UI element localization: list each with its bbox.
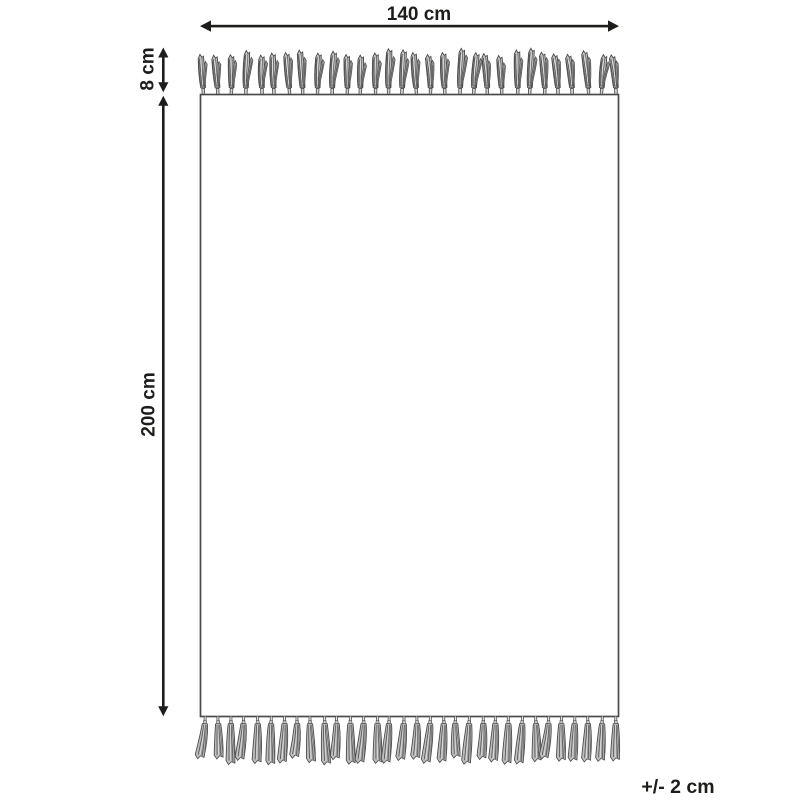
svg-text:200 cm: 200 cm	[139, 372, 160, 436]
svg-text:8 cm: 8 cm	[138, 47, 159, 90]
svg-text:+/- 2 cm: +/- 2 cm	[641, 776, 714, 798]
svg-text:140 cm: 140 cm	[387, 4, 451, 25]
